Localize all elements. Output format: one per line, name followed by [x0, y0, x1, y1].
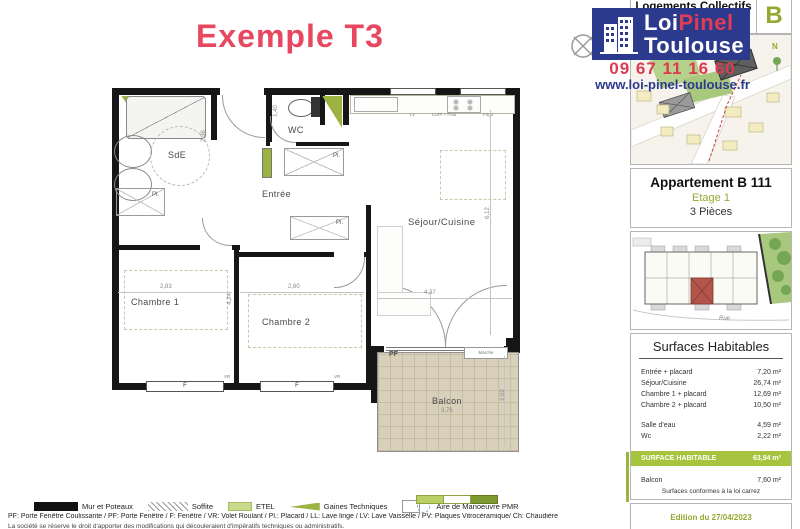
building-plan	[631, 232, 791, 329]
gaines-swatch	[290, 503, 320, 511]
dim-sejour-height: 6,12	[485, 207, 491, 219]
logo-toulouse: Toulouse	[644, 34, 744, 57]
logo-loi: Loi	[644, 10, 679, 35]
wall-segment	[112, 88, 119, 390]
room-label-wc: WC	[288, 125, 304, 135]
surface-label: Balcon	[641, 476, 662, 485]
room-label-entree: Entrée	[262, 189, 291, 199]
dim-line	[378, 298, 512, 299]
edition-panel: Edition du 27/04/2023	[630, 503, 792, 529]
room-label-chambre1: Chambre 1	[131, 297, 179, 307]
dim-chambre2-width: 2,60	[288, 284, 300, 290]
wall-segment	[112, 88, 520, 95]
wall-swatch	[34, 502, 78, 511]
dim-line	[240, 292, 364, 293]
legend-label: Gaines Techniques	[324, 502, 388, 511]
sink	[114, 135, 152, 168]
surface-value: 10,50 m²	[753, 401, 781, 410]
placard-label: Pl.	[333, 153, 340, 159]
apartment-name: Appartement B 111	[631, 175, 791, 190]
etel-strip	[262, 148, 272, 178]
logo-pinel: Pinel	[679, 10, 734, 35]
shutter-label: VR	[334, 374, 340, 379]
north-label: N	[772, 42, 778, 51]
kitchen-window	[460, 88, 506, 95]
surfaces-note: Surfaces conformes à la loi carrez	[631, 488, 791, 495]
surface-value: 7,60 m²	[757, 476, 781, 485]
room-label-balcon: Balcon	[432, 396, 462, 406]
surface-label: SURFACE HABITABLE	[641, 454, 716, 463]
surface-label: Chambre 1 + placard	[641, 390, 707, 399]
surfaces-panel: Surfaces Habitables Entrée + placard 7,2…	[630, 333, 792, 500]
kitchen-window	[390, 88, 436, 95]
dim-line	[504, 356, 505, 446]
room-label-sejour: Séjour/Cuisine	[408, 217, 475, 228]
toilet-tank	[311, 97, 320, 117]
page-title: Exemple T3	[196, 18, 384, 55]
floorplan-sheet: Exemple T3 F F VR VR Lv LL/Pl +	[0, 0, 800, 529]
surface-row: Salle d'eau 4,59 m²	[631, 420, 791, 431]
surfaces-heading: Surfaces Habitables	[639, 339, 783, 359]
wall-segment	[234, 245, 239, 390]
kitchen-sink	[354, 97, 398, 112]
building-icon	[598, 12, 640, 56]
scale-segment	[416, 495, 443, 504]
website-link: www.loi-pinel-toulouse.fr	[575, 77, 770, 92]
legend-disclaimer: La société se réserve le droit d'apporte…	[8, 523, 626, 529]
legend-label: Mur et Poteaux	[82, 502, 133, 511]
legend-item: Gaines Techniques	[290, 502, 388, 511]
placard-label: Pl.	[336, 220, 343, 226]
wall-segment	[506, 338, 520, 353]
legend-item: Soffite	[148, 502, 213, 511]
door-arc	[202, 218, 232, 246]
wall-segment	[343, 88, 349, 125]
surface-label: Salle d'eau	[641, 421, 675, 430]
surface-row: Chambre 2 + placard 10,50 m²	[631, 400, 791, 411]
surface-row: Wc 2,22 m²	[631, 431, 791, 442]
door-arc	[222, 95, 265, 138]
dim-wc-height: 1,40	[273, 105, 279, 117]
dim-chambre-height: 4,24	[227, 293, 233, 305]
step-marche: Marche	[464, 347, 508, 359]
shutter-label: VR	[224, 374, 230, 379]
legend-item: Mur et Poteaux	[34, 502, 133, 511]
building-letter-box: B	[756, 0, 792, 34]
surface-value: 4,59 m²	[757, 421, 781, 430]
legend-label: Soffite	[192, 502, 213, 511]
surface-value: 2,22 m²	[757, 432, 781, 441]
legend-item: ETEL	[228, 502, 275, 511]
surface-row: SURFACE HABITABLE 63,94 m²	[631, 451, 791, 466]
dim-balcon-width: 3,76	[441, 408, 453, 414]
building-letter: B	[757, 0, 791, 32]
placard-label: Pl.	[152, 192, 159, 198]
window-f2: F	[260, 381, 334, 392]
dim-line	[118, 292, 232, 293]
surface-label: Chambre 2 + placard	[641, 401, 707, 410]
apartment-info-panel: Appartement B 111 Etage 1 3 Pièces	[630, 168, 792, 228]
room-label-sde: SdE	[168, 150, 186, 160]
street-label: Rue	[719, 316, 730, 322]
apartment-rooms: 3 Pièces	[631, 206, 791, 218]
surface-value: 63,94 m²	[753, 454, 781, 463]
etel-swatch	[228, 502, 252, 511]
scale-bar	[416, 495, 498, 502]
surface-label: Entrée + placard	[641, 368, 693, 377]
surface-row: Séjour/Cuisine 26,74 m²	[631, 378, 791, 389]
dim-sejour-width: 4,37	[424, 290, 436, 296]
edition-date: Edition du 27/04/2023	[631, 513, 791, 522]
divider-accent	[626, 452, 629, 502]
scale-segment	[443, 495, 471, 504]
surface-label: Wc	[641, 432, 651, 441]
phone-number: 09 67 11 16 60	[585, 59, 760, 79]
dim-sde-width: 2,36	[201, 130, 207, 142]
legend-row: Mur et Poteaux Soffite ETEL Gaines Techn…	[34, 500, 594, 513]
pf-door-label: PF	[389, 351, 398, 358]
balcony-door-arc	[445, 285, 507, 347]
surface-row: Entrée + placard 7,20 m²	[631, 367, 791, 378]
apartment-floor: Etage 1	[631, 192, 791, 204]
gaines-triangle	[322, 96, 342, 128]
dining-table	[440, 150, 506, 200]
soffite-swatch	[148, 502, 188, 511]
sofa	[377, 292, 431, 316]
surface-value: 26,74 m²	[753, 379, 781, 388]
fridge-label: Frigo	[483, 112, 493, 117]
surface-label: Séjour/Cuisine	[641, 379, 687, 388]
surface-value: 7,20 m²	[757, 368, 781, 377]
cooktop	[447, 96, 481, 113]
wall-segment	[211, 88, 217, 140]
legend-abbreviations: PF: Porte Fenêtre Coulissante / PF: Port…	[8, 513, 626, 520]
wall-segment	[513, 88, 520, 353]
door-arc	[334, 257, 365, 288]
surfaces-table: Entrée + placard 7,20 m² Séjour/Cuisine …	[631, 367, 791, 486]
surface-row: Balcon 7,60 m²	[631, 475, 791, 486]
window-f1: F	[146, 381, 224, 392]
room-label-chambre2: Chambre 2	[262, 317, 310, 327]
dim-chambre1-width: 2,83	[160, 284, 172, 290]
surface-value: 12,69 m²	[753, 390, 781, 399]
surface-row: Chambre 1 + placard 12,69 m²	[631, 389, 791, 400]
dishwasher-label: Lv	[410, 112, 415, 117]
scale-segment	[471, 495, 498, 504]
building-plan-panel: Rue	[630, 231, 792, 330]
dim-line	[490, 110, 491, 335]
sofa	[377, 226, 403, 294]
legend-label: ETEL	[256, 502, 275, 511]
dim-balcon-height: 2,02	[500, 389, 506, 401]
brand-logo: LoiPinel Toulouse	[592, 8, 750, 60]
oven-label: LL/Pl + Four	[432, 112, 457, 117]
